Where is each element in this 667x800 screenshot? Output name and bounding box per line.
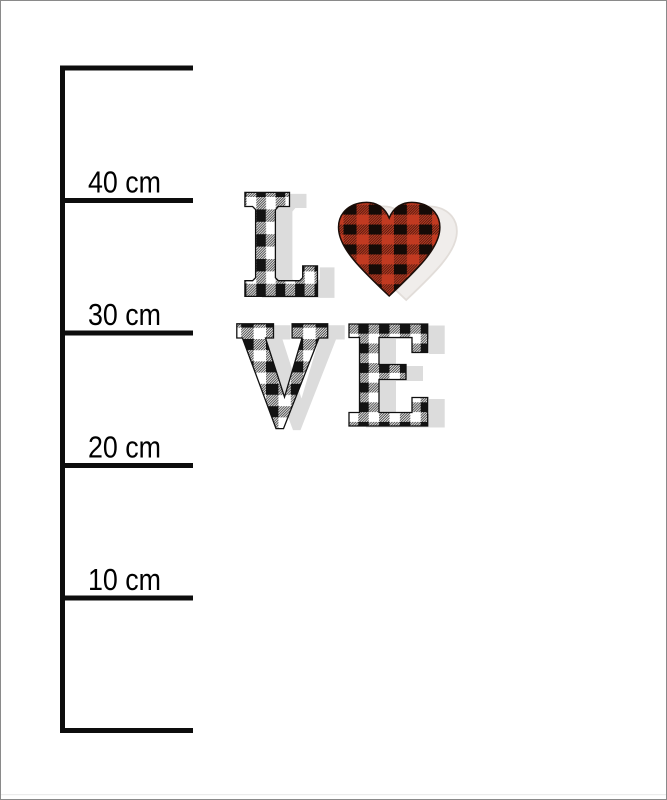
svg-text:40 cm: 40 cm: [88, 164, 161, 199]
svg-text:30 cm: 30 cm: [88, 297, 161, 332]
svg-text:10 cm: 10 cm: [88, 562, 161, 597]
svg-text:20 cm: 20 cm: [88, 429, 161, 464]
